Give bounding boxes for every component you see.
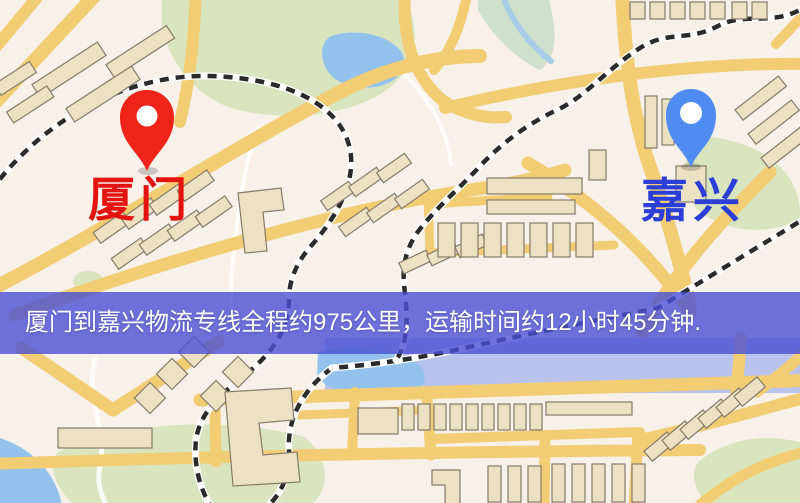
info-banner-text: 厦门到嘉兴物流专线全程约975公里，运输时间约12小时45分钟. xyxy=(25,292,701,354)
destination-city-label: 嘉兴 xyxy=(641,177,745,224)
map-canvas xyxy=(0,0,800,503)
info-banner: 厦门到嘉兴物流专线全程约975公里，运输时间约12小时45分钟. xyxy=(0,292,800,354)
map-screenshot: 厦门 嘉兴 厦门到嘉兴物流专线全程约975公里，运输时间约12小时45分钟. xyxy=(0,0,800,503)
origin-pin-icon[interactable] xyxy=(120,90,174,175)
origin-city-label: 厦门 xyxy=(88,176,192,223)
